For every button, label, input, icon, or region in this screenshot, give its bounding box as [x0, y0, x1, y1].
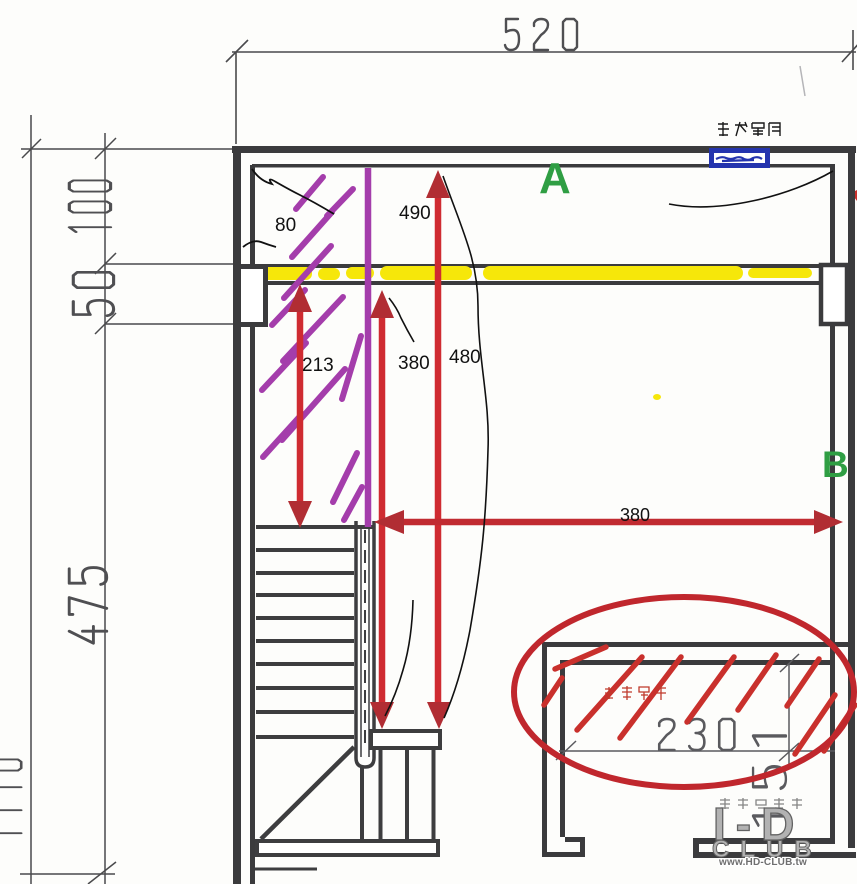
svg-text:80: 80 — [275, 215, 296, 236]
svg-text:480: 480 — [449, 347, 481, 368]
svg-text:380: 380 — [398, 353, 430, 374]
svg-text:213: 213 — [302, 355, 334, 376]
svg-text:www.HD-CLUB.tw: www.HD-CLUB.tw — [718, 857, 807, 868]
svg-text:B: B — [822, 444, 849, 485]
svg-text:A: A — [539, 154, 571, 203]
svg-text:490: 490 — [399, 203, 431, 224]
svg-text:380: 380 — [620, 505, 650, 525]
